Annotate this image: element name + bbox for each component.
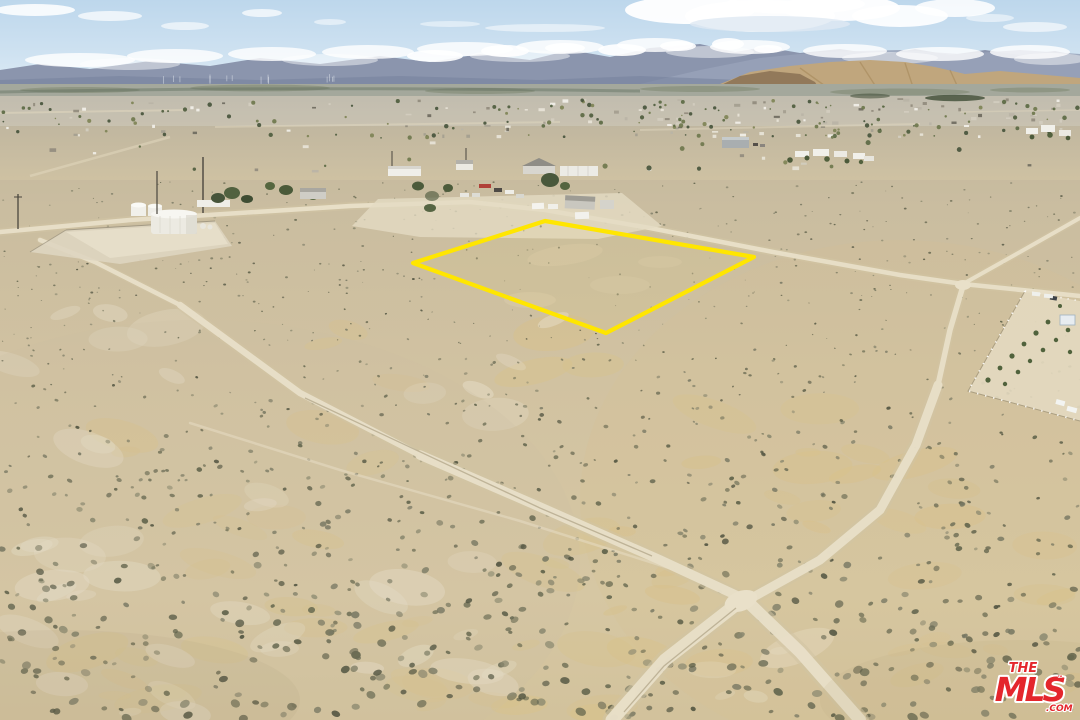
mls-logo-suffix: .COM — [1046, 704, 1073, 714]
mls-logo-trademark: ™ — [1057, 675, 1063, 682]
valley-haze — [0, 84, 1080, 98]
aerial-photo: THE MLS ™ .COM — [0, 0, 1080, 720]
